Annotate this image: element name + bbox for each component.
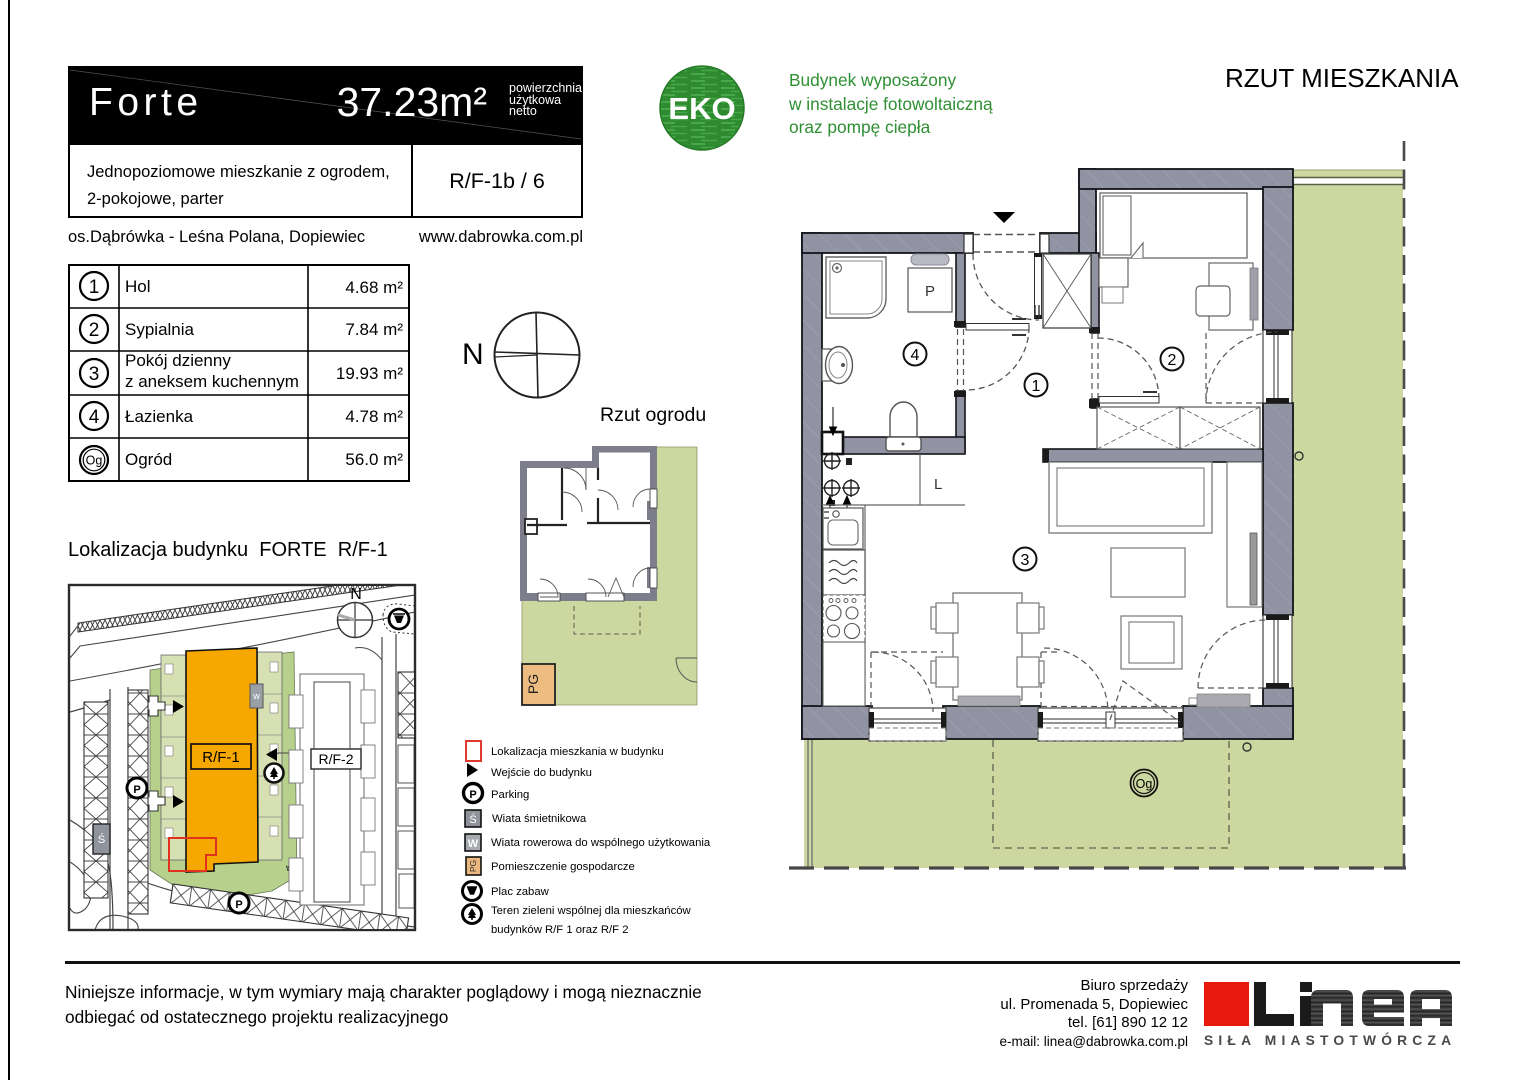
- svg-text:w: w: [252, 691, 260, 701]
- svg-text:3: 3: [89, 364, 100, 385]
- svg-text:Wejście do budynku: Wejście do budynku: [491, 767, 592, 779]
- svg-text:19.93 m²: 19.93 m²: [336, 364, 403, 383]
- svg-text:Og: Og: [1136, 777, 1153, 791]
- svg-text:2: 2: [89, 320, 100, 341]
- svg-text:4.68 m²: 4.68 m²: [345, 278, 403, 297]
- svg-text:Plac zabaw: Plac zabaw: [491, 886, 550, 898]
- svg-text:2: 2: [1168, 352, 1177, 369]
- svg-text:Łazienka: Łazienka: [125, 407, 194, 426]
- svg-text:3: 3: [1021, 552, 1030, 569]
- svg-text:L: L: [934, 476, 942, 493]
- svg-text:N: N: [350, 586, 362, 603]
- svg-text:1: 1: [89, 277, 100, 298]
- svg-text:P: P: [925, 283, 935, 300]
- svg-text:EKO: EKO: [668, 91, 735, 126]
- svg-text:1: 1: [1032, 378, 1041, 395]
- svg-text:Wiata rowerowa do wspólnego uż: Wiata rowerowa do wspólnego użytkowania: [491, 837, 711, 849]
- svg-text:W: W: [468, 838, 479, 850]
- svg-text:4: 4: [911, 347, 920, 364]
- svg-text:Pokój dzienny: Pokój dzienny: [125, 351, 231, 370]
- svg-text:PG: PG: [468, 860, 478, 872]
- svg-text:z aneksem kuchennym: z aneksem kuchennym: [125, 372, 299, 391]
- svg-text:4.78 m²: 4.78 m²: [345, 407, 403, 426]
- svg-text:P: P: [469, 789, 476, 801]
- svg-text:w: w: [285, 863, 294, 874]
- svg-text:Ś: Ś: [469, 813, 476, 826]
- svg-text:56.0 m²: 56.0 m²: [345, 450, 403, 469]
- svg-text:Ś: Ś: [98, 833, 105, 846]
- svg-text:R/F-1: R/F-1: [202, 749, 240, 766]
- svg-text:7.84 m²: 7.84 m²: [345, 320, 403, 339]
- svg-text:Hol: Hol: [125, 277, 151, 296]
- svg-text:Lokalizacja mieszkania w budyn: Lokalizacja mieszkania w budynku: [491, 746, 664, 758]
- svg-text:Og: Og: [86, 454, 103, 468]
- svg-text:Parking: Parking: [491, 789, 529, 801]
- svg-text:R/F-2: R/F-2: [319, 751, 354, 767]
- svg-text:budynków R/F 1 oraz R/F 2: budynków R/F 1 oraz R/F 2: [491, 924, 629, 936]
- svg-text:Teren zieleni wspólnej dla mie: Teren zieleni wspólnej dla mieszkańców: [491, 905, 692, 917]
- svg-text:SIŁA MIASTOTWÓRCZA: SIŁA MIASTOTWÓRCZA: [1204, 1031, 1456, 1048]
- svg-text:P: P: [235, 899, 242, 911]
- svg-text:Sypialnia: Sypialnia: [125, 320, 195, 339]
- svg-text:4: 4: [89, 407, 100, 428]
- svg-text:Wiata śmietnikowa: Wiata śmietnikowa: [492, 813, 587, 825]
- svg-text:P: P: [133, 784, 140, 796]
- svg-text:Pomieszczenie gospodarcze: Pomieszczenie gospodarcze: [491, 861, 635, 873]
- svg-text:Ogród: Ogród: [125, 450, 172, 469]
- svg-text:PG: PG: [525, 674, 541, 694]
